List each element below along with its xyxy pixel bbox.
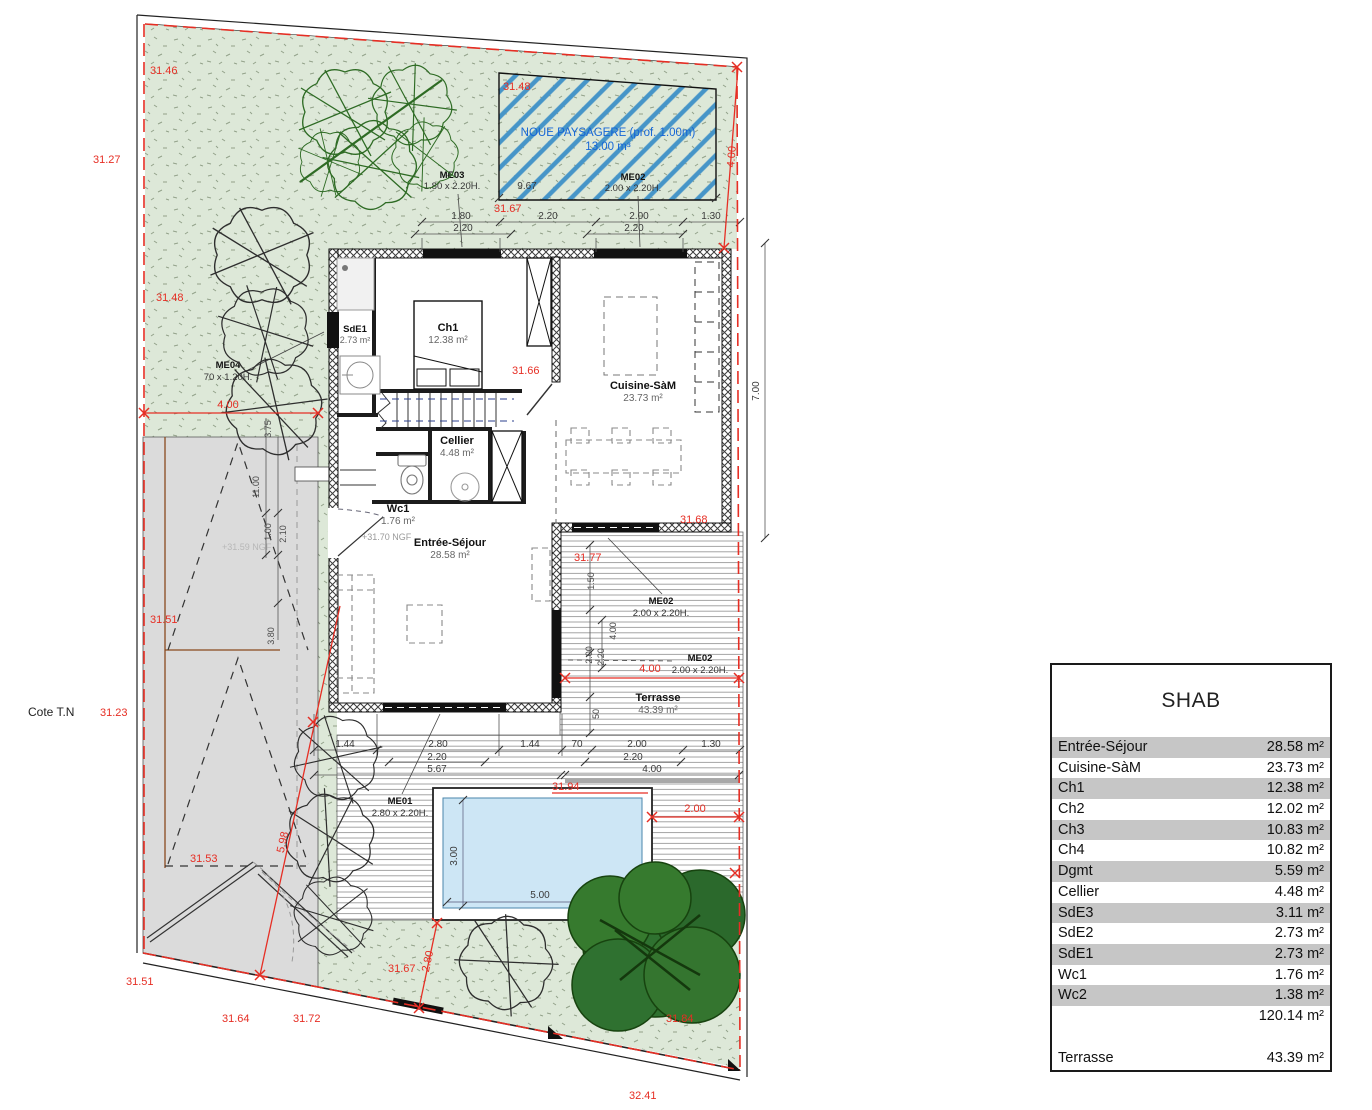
cote-tn-value: 31.23 — [100, 707, 128, 719]
room-ch1: Ch1 — [438, 322, 459, 334]
dim: 2.20 — [624, 223, 644, 234]
row-label: Wc2 — [1058, 985, 1087, 1006]
level: 31.77 — [574, 552, 602, 564]
row-label: Ch3 — [1058, 820, 1085, 841]
red-dim: 4.00 — [725, 146, 739, 168]
noue-title: NOUE PAYSAGERE (prof. 1.00m) — [521, 127, 696, 139]
me03-size: 1.80 x 2.20H. — [424, 181, 481, 192]
noue-width-dim: 9.67 — [517, 181, 537, 192]
me02-label-3: ME02 — [688, 653, 713, 664]
level: 31.94 — [552, 781, 580, 793]
floor-plan-page: NOUE PAYSAGERE (prof. 1.00m) 13.00 m³ 9.… — [0, 0, 1372, 1110]
room-cellier-area: 4.48 m² — [440, 448, 475, 459]
dim: 1.80 — [451, 211, 471, 222]
row-value: 1.38 m² — [1275, 985, 1324, 1006]
table-row: Wc11.76 m² — [1052, 965, 1330, 986]
dim: 7.00 — [751, 381, 762, 401]
porch-threshold — [295, 467, 330, 481]
level: 31.67 — [388, 963, 416, 975]
row-label: Ch4 — [1058, 840, 1085, 861]
shab-title: SHAB — [1052, 665, 1330, 737]
table-row: Ch410.82 m² — [1052, 840, 1330, 861]
dim: 11.00 — [251, 476, 261, 498]
dim: 1.30 — [701, 211, 721, 222]
row-value: 3.11 m² — [1276, 903, 1324, 924]
dim: 2.10 — [278, 525, 288, 543]
dim: 2.20 — [538, 211, 558, 222]
ngf-drive: +31.59 NGF — [222, 542, 272, 552]
shab-table: SHAB Entrée-Séjour28.58 m² Cuisine-SàM23… — [1050, 663, 1332, 1072]
noue-volume: 13.00 m³ — [585, 141, 631, 153]
level: 31.48 — [156, 292, 184, 304]
level: 31.68 — [680, 514, 708, 526]
me02-size-3: 2.00 x 2.20H. — [672, 665, 729, 676]
row-label: SdE1 — [1058, 944, 1093, 965]
room-cellier: Cellier — [440, 435, 474, 447]
table-row-terrasse: Terrasse 43.39 m² — [1052, 1048, 1330, 1069]
room-wc1: Wc1 — [387, 503, 410, 515]
dim: 2.00 — [584, 646, 594, 664]
row-value: 2.73 m² — [1275, 944, 1324, 965]
row-label: Dgmt — [1058, 861, 1093, 882]
table-row: SdE33.11 m² — [1052, 903, 1330, 924]
ngf-entry: +31.70 NGF — [362, 532, 412, 542]
window-me03 — [423, 249, 501, 258]
table-row: Cellier4.48 m² — [1052, 882, 1330, 903]
dim: 5.67 — [427, 764, 447, 775]
row-value: 2.73 m² — [1275, 923, 1324, 944]
table-row: Cuisine-SàM23.73 m² — [1052, 758, 1330, 779]
row-value: 10.82 m² — [1267, 840, 1324, 861]
row-label: Ch2 — [1058, 799, 1085, 820]
dim: 50 — [591, 709, 601, 719]
row-value: 10.83 m² — [1267, 820, 1324, 841]
table-row: Wc21.38 m² — [1052, 985, 1330, 1006]
level: 31.48 — [503, 81, 531, 93]
level: 31.72 — [293, 1013, 321, 1025]
window-me04 — [327, 312, 339, 348]
dim: 2.20 — [623, 752, 643, 763]
window-me02-north — [594, 249, 687, 258]
dim: 4.00 — [642, 764, 662, 775]
dim: 1.50 — [586, 572, 596, 590]
room-cuisine: Cuisine-SàM — [610, 380, 676, 392]
me02-label-2: ME02 — [649, 596, 674, 607]
level: 31.46 — [150, 65, 178, 77]
level: 31.27 — [93, 154, 121, 166]
window-me02-east — [552, 610, 561, 698]
level: 31.84 — [666, 1013, 694, 1025]
row-value: 5.59 m² — [1275, 861, 1324, 882]
room-cuisine-area: 23.73 m² — [623, 393, 663, 404]
room-terrasse-area: 43.39 m² — [638, 705, 678, 716]
red-dim: 4.00 — [639, 663, 660, 675]
level: 31.53 — [190, 853, 218, 865]
level: 31.67 — [494, 203, 522, 215]
room-sde1-area: 2.73 m² — [340, 335, 371, 345]
row-label: Cuisine-SàM — [1058, 758, 1141, 779]
shab-rows: Entrée-Séjour28.58 m² Cuisine-SàM23.73 m… — [1052, 737, 1330, 1027]
me02-label: ME02 — [621, 172, 646, 183]
row-value: 43.39 m² — [1267, 1048, 1324, 1069]
room-sde1: SdE1 — [343, 324, 367, 335]
washbasin — [340, 356, 380, 394]
row-value: 12.02 m² — [1267, 799, 1324, 820]
dim: 2.80 — [428, 739, 448, 750]
table-row: Ch112.38 m² — [1052, 778, 1330, 799]
level: 31.66 — [512, 365, 540, 377]
level: 32.41 — [629, 1090, 657, 1102]
room-sejour: Entrée-Séjour — [414, 537, 487, 549]
dim: 1.44 — [335, 739, 355, 750]
row-label: Cellier — [1058, 882, 1099, 903]
row-value: 12.38 m² — [1267, 778, 1324, 799]
dim: 2.20 — [453, 223, 473, 234]
dim: 2.20 — [596, 648, 606, 666]
row-label: SdE3 — [1058, 903, 1093, 924]
row-label: SdE2 — [1058, 923, 1093, 944]
row-value: 23.73 m² — [1267, 758, 1324, 779]
table-row: Ch310.83 m² — [1052, 820, 1330, 841]
table-row: Entrée-Séjour28.58 m² — [1052, 737, 1330, 758]
dim: 2.20 — [427, 752, 447, 763]
room-terrasse: Terrasse — [635, 692, 680, 704]
dim: 2.00 — [627, 739, 647, 750]
row-label: Wc1 — [1058, 965, 1087, 986]
table-row: Ch212.02 m² — [1052, 799, 1330, 820]
dim: 1.30 — [701, 739, 721, 750]
row-value: 28.58 m² — [1267, 737, 1324, 758]
me01-size: 2.80 x 2.20H. — [372, 808, 429, 819]
table-row: SdE22.73 m² — [1052, 923, 1330, 944]
row-value: 120.14 m² — [1259, 1006, 1324, 1027]
me01-label: ME01 — [388, 796, 414, 807]
me02-size: 2.00 x 2.20H. — [605, 183, 662, 194]
dim: 3.80 — [266, 627, 276, 645]
cote-tn-label: Cote T.N — [28, 705, 74, 719]
dim: 1.44 — [520, 739, 540, 750]
shower — [337, 258, 374, 310]
dim: 4.00 — [608, 622, 618, 640]
pool-width-dim: 5.00 — [530, 890, 550, 901]
row-label: Entrée-Séjour — [1058, 737, 1147, 758]
dim: 1.00 — [263, 523, 273, 541]
row-value: 1.76 m² — [1275, 965, 1324, 986]
level: 31.64 — [222, 1013, 250, 1025]
row-label: Terrasse — [1058, 1048, 1114, 1069]
red-dim: 4.00 — [217, 399, 238, 411]
dim: 3.75 — [263, 420, 273, 438]
row-value: 4.48 m² — [1275, 882, 1324, 903]
red-dim: 2.00 — [684, 803, 705, 815]
me02-size-2: 2.00 x 2.20H. — [633, 608, 690, 619]
table-row: SdE12.73 m² — [1052, 944, 1330, 965]
table-row: Dgmt5.59 m² — [1052, 861, 1330, 882]
dim: 70 — [571, 739, 583, 750]
level: 31.51 — [126, 976, 154, 988]
pool-height-dim: 3.00 — [449, 846, 460, 866]
room-sejour-area: 28.58 m² — [430, 550, 470, 561]
tree-solid-se — [568, 862, 745, 1031]
room-ch1-area: 12.38 m² — [428, 335, 468, 346]
table-row-total: 120.14 m² — [1052, 1006, 1330, 1027]
level: 31.51 — [150, 614, 178, 626]
room-wc1-area: 1.76 m² — [381, 516, 416, 527]
row-label: Ch1 — [1058, 778, 1085, 799]
